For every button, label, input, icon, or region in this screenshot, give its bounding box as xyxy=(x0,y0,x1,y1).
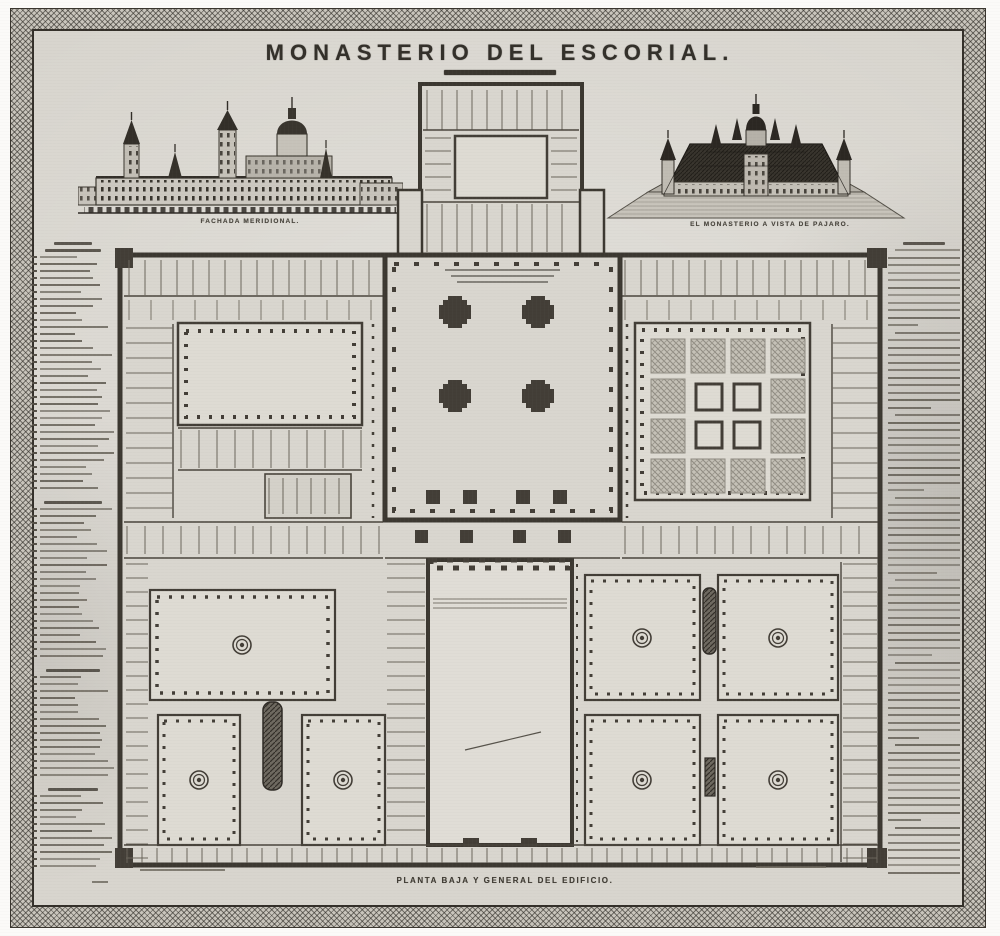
basilica-pier xyxy=(522,296,554,328)
title-ornament-rule xyxy=(444,70,556,75)
monastery-main-block xyxy=(115,248,887,868)
historical-note-column xyxy=(888,240,960,876)
basilica-pier xyxy=(522,380,554,412)
plate-number-mark xyxy=(92,881,108,883)
ground-plan xyxy=(115,82,890,872)
water-tank xyxy=(705,758,715,796)
plan-caption: PLANTA BAJA Y GENERAL DEL EDIFICIO. xyxy=(300,876,710,885)
engraver-credit-left xyxy=(140,869,225,871)
basilica xyxy=(385,255,620,520)
patio-de-los-reyes xyxy=(428,560,572,847)
legend-key-column xyxy=(32,240,114,874)
west-cloister-courtyard xyxy=(178,323,362,425)
evangelists-courtyard xyxy=(635,323,810,500)
royal-palace-block xyxy=(398,84,604,260)
engraver-credit-right xyxy=(756,866,826,868)
basilica-pier xyxy=(439,380,471,412)
palace-courtyard xyxy=(455,136,547,198)
engraved-plate: MONASTERIO DEL ESCORIAL. xyxy=(0,0,1000,936)
water-tank xyxy=(263,702,282,790)
basilica-pier xyxy=(439,296,471,328)
plate-title: MONASTERIO DEL ESCORIAL. xyxy=(0,40,1000,66)
kitchen-block xyxy=(265,474,351,518)
water-tank xyxy=(703,588,716,654)
